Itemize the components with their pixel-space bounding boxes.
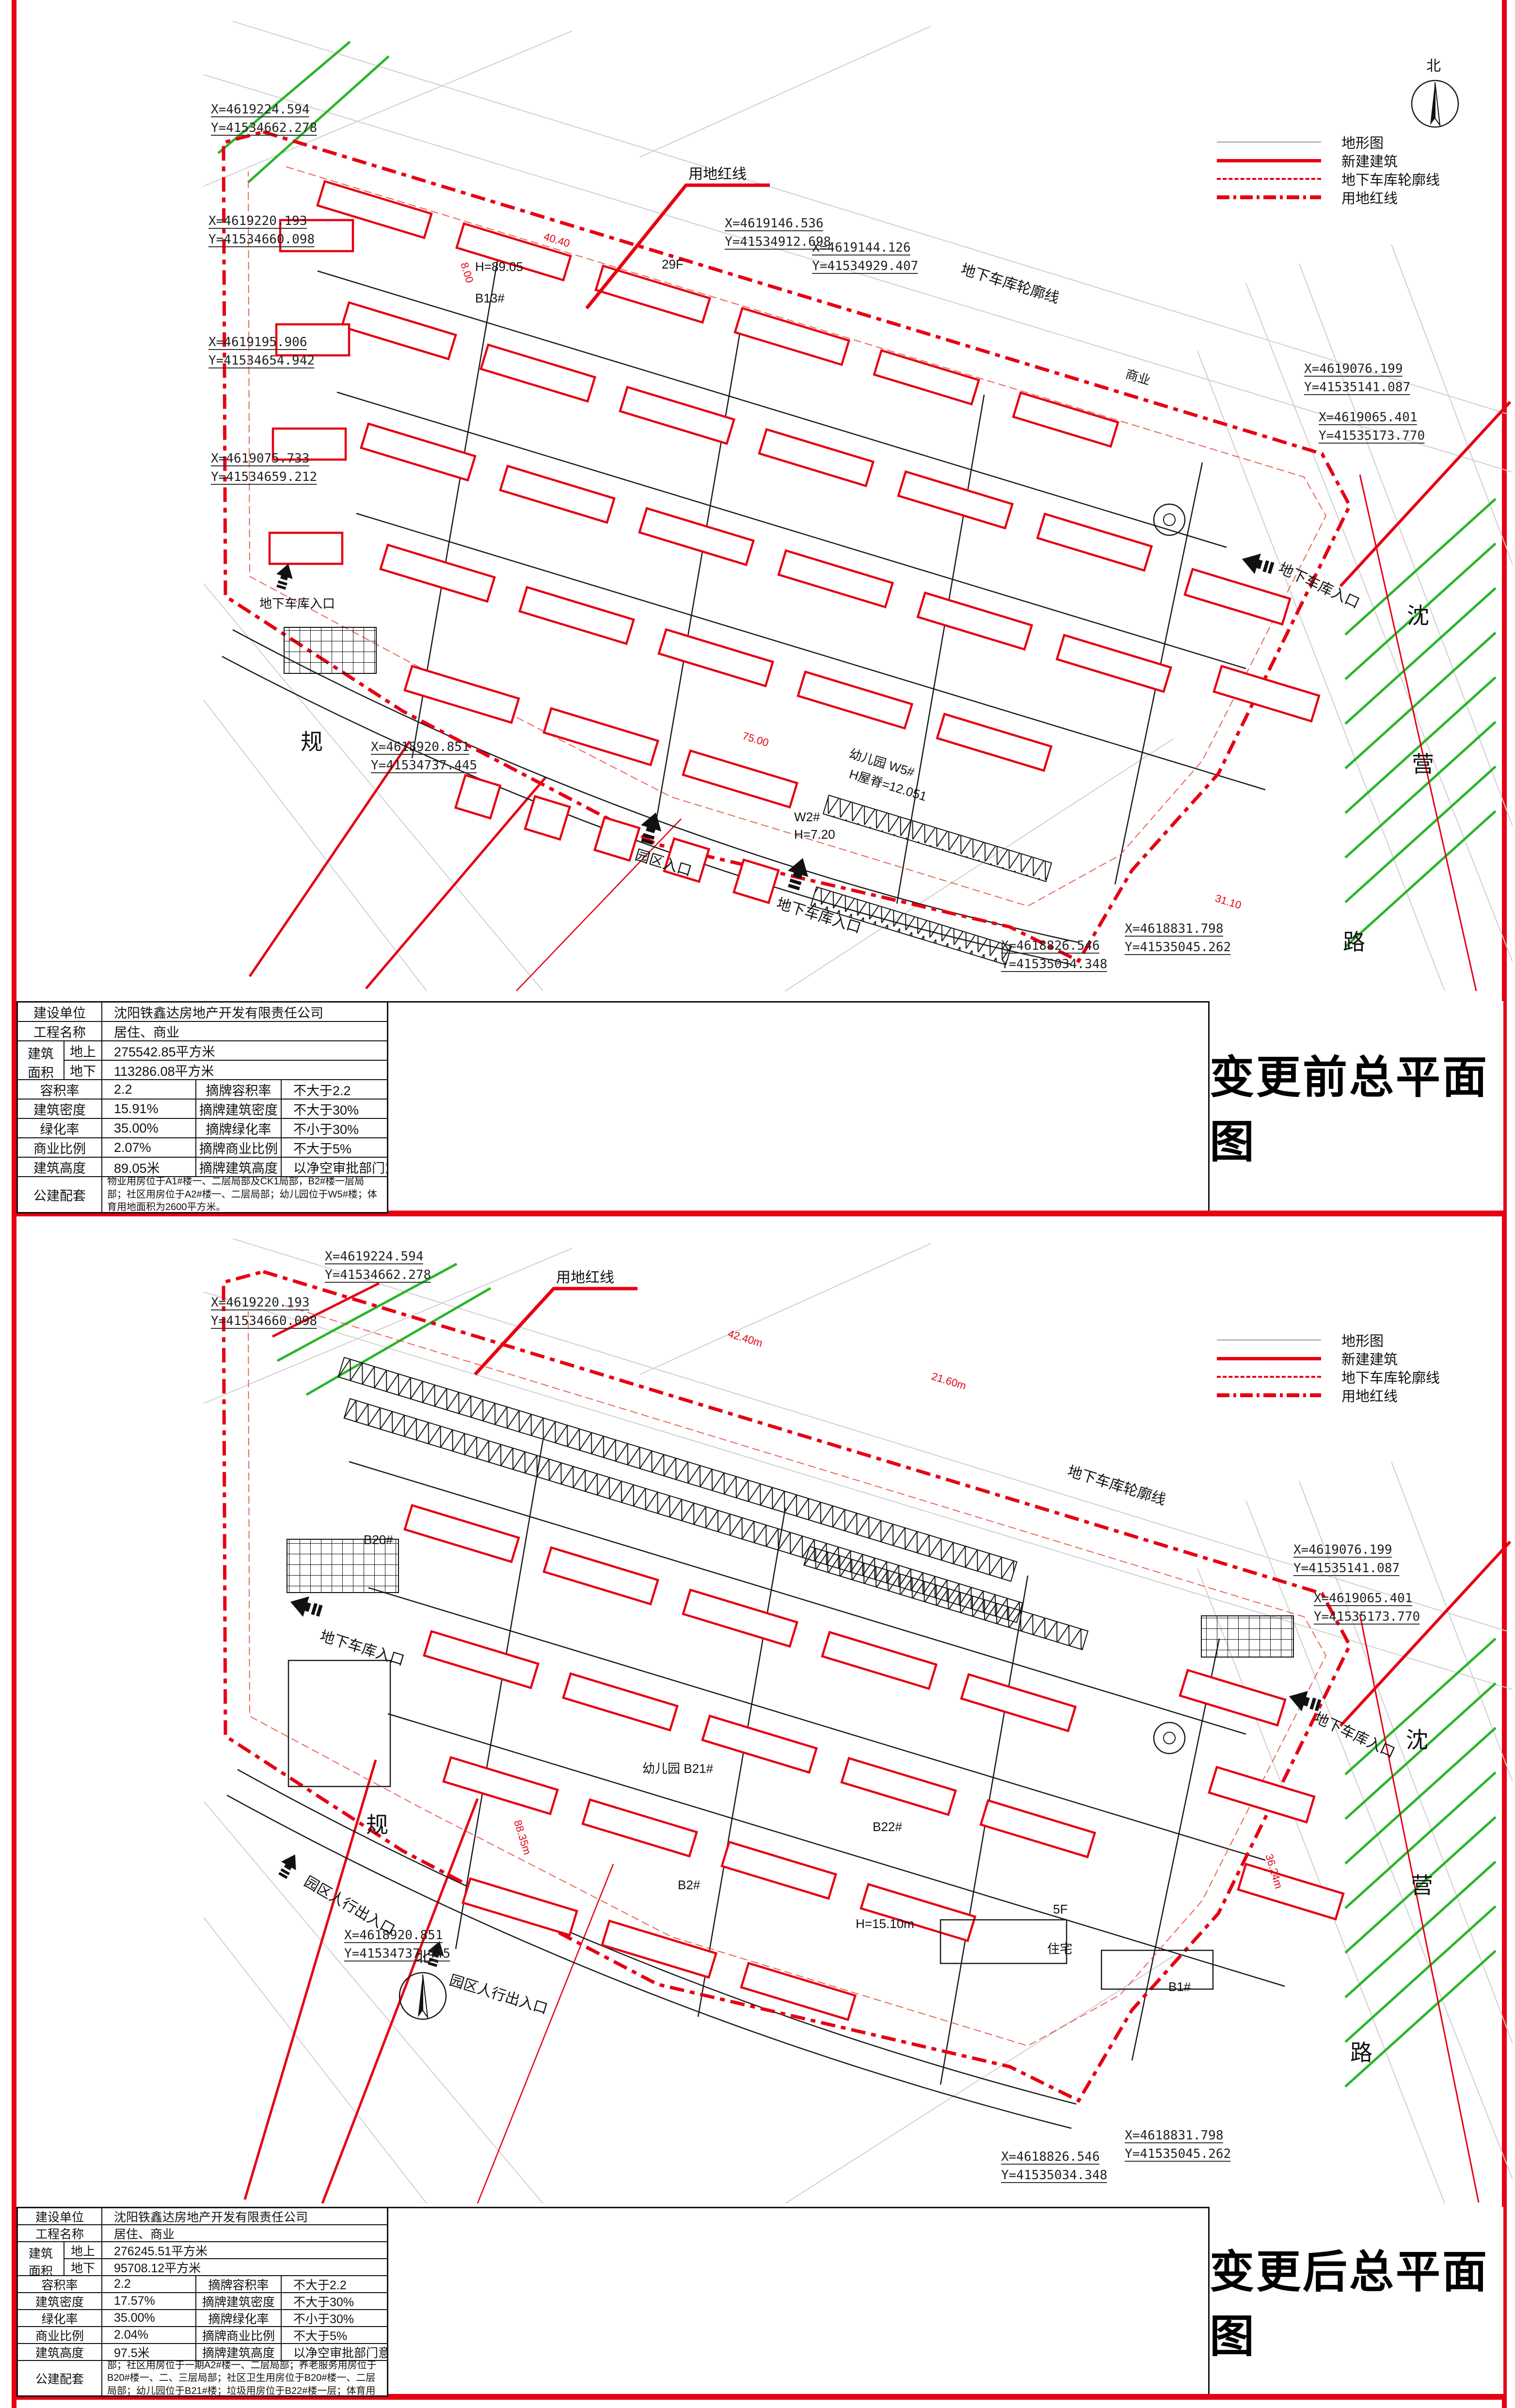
row-label: 公建配套	[18, 1177, 102, 1212]
map-label: 88.35m	[511, 1818, 533, 1856]
new-building-swatch	[1217, 159, 1321, 162]
public-facilities-value: 物业用房位于一期A1#楼一、二层局部及B20#楼一层、三层局部；社区用房位于一期…	[102, 2361, 387, 2395]
density2-value: 不大于30%	[282, 2293, 387, 2310]
legend-label: 地形图	[1341, 1330, 1384, 1350]
row-label: 商业比例	[18, 1138, 102, 1158]
row-label: 摘牌建筑高度	[196, 2344, 282, 2361]
row-label: 容积率	[18, 2276, 102, 2293]
map-label: X=4618920.851	[371, 740, 470, 754]
parking-grid	[1201, 1616, 1293, 1657]
redline-leader	[475, 1289, 638, 1374]
map-label: 规	[366, 1812, 388, 1837]
map-label: Y=41534660.098	[208, 232, 315, 247]
legend-label: 地下车库轮廓线	[1341, 169, 1440, 189]
legend-item-garage-outline: 地下车库轮廓线	[1217, 1368, 1488, 1386]
far-value: 2.2	[102, 2276, 196, 2293]
map-label: X=4619144.126	[812, 240, 911, 255]
row-label: 建筑密度	[18, 1100, 102, 1119]
legend-label: 新建建筑	[1341, 1348, 1398, 1369]
map-label: X=4619146.536	[725, 216, 824, 231]
height2-value: 以净空审批部门意见为准	[282, 1158, 387, 1177]
map-label: 营	[1412, 751, 1434, 777]
map-label: Y=41534654.942	[208, 353, 315, 368]
map-label: 用地红线	[556, 1270, 614, 1286]
company-value: 沈阳铁鑫达房地产开发有限责任公司	[102, 1003, 387, 1022]
project-value: 居住、商业	[102, 1022, 387, 1041]
row-label: 地上	[64, 2242, 102, 2259]
garage-entrance-arrow-icon	[273, 561, 297, 591]
legend-item-topo: 地形图	[1217, 1331, 1488, 1349]
map-label: 营	[1411, 1873, 1433, 1898]
map-label: Y=41534662.278	[325, 1268, 431, 1282]
below-ground-area: 113286.08平方米	[102, 1061, 387, 1080]
map-label: Y=41535034.348	[1001, 957, 1107, 972]
row-label: 工程名称	[18, 2225, 102, 2242]
below-ground-area: 95708.12平方米	[102, 2259, 387, 2276]
internal-roads	[222, 249, 1265, 964]
legend-label: 地形图	[1341, 132, 1384, 152]
spec-table-before: 建设单位 沈阳铁鑫达房地产开发有限责任公司 工程名称 居住、商业 建筑 面积 地…	[16, 1001, 388, 1213]
map-label: 用地红线	[688, 166, 747, 182]
height-value: 89.05米	[102, 1158, 196, 1177]
parking-grid	[287, 1539, 399, 1593]
drawing-sheet: { "titles": { "before": "变更前总平面图", "afte…	[0, 0, 1515, 2408]
legend-item-new-building: 新建建筑	[1217, 1349, 1488, 1368]
map-label: X=4619065.401	[1314, 1591, 1413, 1606]
map-label: Y=41535045.262	[1125, 940, 1231, 955]
map-label: X=4619224.594	[211, 102, 310, 117]
legend-before: 地形图 新建建筑 地下车库轮廓线 用地红线	[1217, 133, 1488, 207]
map-label: 地下车库轮廓线	[1066, 1463, 1167, 1508]
green-hatch-area	[1345, 1639, 1496, 2087]
row-label-area: 建筑 面积	[18, 1041, 64, 1080]
map-label: W2#	[794, 810, 820, 824]
map-label: 75.00	[741, 730, 770, 749]
row-label: 摘牌绿化率	[196, 1119, 282, 1138]
company-value: 沈阳铁鑫达房地产开发有限责任公司	[102, 2208, 387, 2225]
map-label: X=4619224.594	[325, 1249, 424, 1264]
project-value: 居住、商业	[102, 2225, 387, 2242]
map-label: X=4619076.199	[1293, 1543, 1392, 1557]
map-label: 沈	[1407, 603, 1429, 628]
roundabout	[1154, 1722, 1185, 1754]
biz2-value: 不大于5%	[282, 1138, 387, 1158]
map-label: X=4619076.199	[1304, 362, 1403, 376]
row-label: 地上	[64, 1041, 102, 1061]
map-label: 42.40m	[727, 1327, 764, 1349]
legend-item-new-building: 新建建筑	[1217, 151, 1488, 170]
map-label: 路	[1350, 2040, 1372, 2065]
map-label: 路	[1343, 929, 1365, 955]
row-label: 工程名称	[18, 1022, 102, 1041]
row-label: 地下	[64, 2259, 102, 2276]
north-arrow-icon	[399, 1973, 446, 2019]
topo-line-swatch	[1217, 142, 1321, 143]
map-label: X=4618831.798	[1125, 2128, 1224, 2143]
map-label: X=4619220.193	[208, 214, 307, 228]
map-label: Y=41534659.212	[211, 470, 317, 484]
legend-item-garage-outline: 地下车库轮廓线	[1217, 170, 1488, 188]
map-label: X=4619065.401	[1319, 410, 1418, 425]
sheet-title-before: 变更前总平面图	[1208, 1001, 1503, 1211]
row-label: 建筑密度	[18, 2293, 102, 2310]
far-value: 2.2	[102, 1080, 196, 1100]
new-buildings	[270, 181, 1319, 974]
map-label: Y=41534660.098	[211, 1314, 317, 1328]
map-label: B1#	[1168, 1979, 1191, 1994]
garage-entrance-arrow-icon	[783, 855, 813, 892]
row-label: 建筑高度	[18, 2344, 102, 2361]
row-label: 摘牌建筑高度	[196, 1158, 282, 1177]
map-label: Y=41534662.278	[211, 121, 317, 135]
green2-value: 不小于30%	[282, 2310, 387, 2327]
spec-table-after: 建设单位 沈阳铁鑫达房地产开发有限责任公司 工程名称 居住、商业 建筑 面积 地…	[16, 2207, 388, 2397]
row-label-area: 建筑 面积	[18, 2242, 64, 2276]
red-line-swatch	[1217, 1393, 1321, 1397]
row-label: 建设单位	[18, 2208, 102, 2225]
row-label: 摘牌建筑密度	[196, 2293, 282, 2310]
row-label: 摘牌容积率	[196, 1080, 282, 1100]
site-plan-before: X=4619224.594Y=41534662.278X=4619220.193…	[204, 12, 1513, 994]
row-label: 绿化率	[18, 2310, 102, 2327]
row-label: 摘牌建筑密度	[196, 1100, 282, 1119]
topo-line-swatch	[1217, 1340, 1321, 1340]
density-value: 17.57%	[102, 2293, 196, 2310]
map-label: Y=41535173.770	[1319, 429, 1425, 443]
row-label: 公建配套	[18, 2361, 102, 2395]
map-label: 规	[301, 729, 323, 754]
site-plan-after: X=4619224.594Y=41534662.278X=4619220.193…	[204, 1234, 1513, 2203]
map-label: Y=41535034.348	[1001, 2168, 1107, 2183]
legend-label: 用地红线	[1341, 1385, 1398, 1405]
page-border-left	[12, 0, 16, 2408]
garage-entrance-arrow-icon	[1239, 549, 1276, 578]
area-label-line1: 建筑	[28, 1043, 54, 1062]
row-label: 摘牌商业比例	[196, 1138, 282, 1158]
map-label: 29F	[662, 257, 684, 271]
garage-entrance-arrow-icon	[287, 1592, 324, 1621]
map-label: 园区人行出入口	[447, 1972, 549, 2017]
green-value: 35.00%	[102, 1119, 196, 1138]
map-label: 5F	[1053, 1902, 1068, 1916]
map-label: Y=41534737.445	[371, 758, 477, 773]
height2-value: 以净空审批部门意见为准	[282, 2344, 387, 2361]
legend-item-topo: 地形图	[1217, 133, 1488, 151]
map-label: 21.60m	[930, 1370, 968, 1392]
row-label: 摘牌容积率	[196, 2276, 282, 2293]
row-label: 地下	[64, 1061, 102, 1080]
map-label: 住宅	[1047, 1942, 1072, 1956]
legend-label: 地下车库轮廓线	[1341, 1367, 1440, 1387]
map-label: 北	[1426, 58, 1441, 74]
parking-grid	[284, 627, 376, 673]
row-label: 建筑高度	[18, 1158, 102, 1177]
map-label: 沈	[1406, 1727, 1428, 1753]
map-label: B13#	[475, 291, 505, 305]
row-label: 摘牌绿化率	[196, 2310, 282, 2327]
map-label: Y=41535045.262	[1125, 2147, 1231, 2161]
legend-label: 新建建筑	[1341, 150, 1398, 171]
north-arrow-icon	[1412, 80, 1458, 127]
density-value: 15.91%	[102, 1100, 196, 1119]
green2-value: 不小于30%	[282, 1119, 387, 1138]
map-label: B20#	[364, 1532, 393, 1547]
legend-item-red-line: 用地红线	[1217, 188, 1488, 207]
far2-value: 不大于2.2	[282, 2276, 387, 2293]
map-label: 40.40	[542, 230, 572, 250]
map-label: 地下车库入口	[318, 1628, 406, 1669]
far2-value: 不大于2.2	[282, 1080, 387, 1100]
density2-value: 不大于30%	[282, 1100, 387, 1119]
map-label: Y=41535141.087	[1304, 380, 1410, 395]
map-label: 地下车库轮廓线	[959, 261, 1061, 306]
sheet-title-after: 变更后总平面图	[1208, 2207, 1503, 2394]
legend-label: 用地红线	[1341, 187, 1398, 207]
row-label: 摘牌商业比例	[196, 2327, 282, 2344]
map-label: 31.10	[1214, 892, 1243, 911]
map-label: Y=41535141.087	[1293, 1561, 1400, 1576]
map-label: Y=41535173.770	[1314, 1610, 1420, 1624]
map-label: Y=41534929.407	[812, 259, 918, 273]
red-line-swatch	[1217, 195, 1321, 199]
area-label-line2: 面积	[29, 2262, 53, 2276]
area-label-line2: 面积	[28, 1062, 54, 1080]
map-label: H=15.10m	[856, 1916, 914, 1931]
biz-value: 2.07%	[102, 1138, 196, 1158]
map-label: H=89.05	[475, 259, 523, 274]
height-value: 97.5米	[102, 2344, 196, 2361]
row-label: 商业比例	[18, 2327, 102, 2344]
garage-outline-swatch	[1217, 1376, 1321, 1378]
map-label: B22#	[873, 1819, 902, 1834]
legend-item-red-line: 用地红线	[1217, 1386, 1488, 1404]
row-label: 容积率	[18, 1080, 102, 1100]
public-facilities-value: 物业用房位于A1#楼一、二层局部及CK1局部，B2#楼一层局部；社区用房位于A2…	[102, 1177, 387, 1212]
row-label: 建设单位	[18, 1003, 102, 1022]
area-label-line1: 建筑	[29, 2244, 53, 2262]
green-value: 35.00%	[102, 2310, 196, 2327]
map-label: Y=41534737.445	[344, 1946, 450, 1961]
legend-after: 地形图 新建建筑 地下车库轮廓线 用地红线	[1217, 1331, 1488, 1404]
map-label: X=4618831.798	[1125, 922, 1224, 936]
new-building-swatch	[1217, 1357, 1321, 1360]
map-label: 8.00	[458, 261, 476, 284]
map-label: B2#	[678, 1878, 701, 1892]
biz2-value: 不大于5%	[282, 2327, 387, 2344]
map-label: X=4618826.546	[1001, 939, 1100, 953]
map-label: 北	[416, 1949, 431, 1965]
above-ground-area: 276245.51平方米	[102, 2242, 387, 2259]
map-label: X=4619075.733	[211, 451, 310, 466]
map-label: 幼儿园 B21#	[642, 1761, 713, 1776]
row-label: 绿化率	[18, 1119, 102, 1138]
above-ground-area: 275542.85平方米	[102, 1041, 387, 1061]
map-label: 地下车库入口	[259, 596, 335, 611]
map-label: X=4618826.546	[1001, 2150, 1100, 2164]
map-label: X=4619195.906	[208, 335, 307, 350]
map-label: 商业	[1124, 367, 1152, 388]
map-label: X=4619220.193	[211, 1295, 310, 1310]
biz-value: 2.04%	[102, 2327, 196, 2344]
garage-outline-swatch	[1217, 178, 1321, 180]
map-label: H=7.20	[794, 827, 835, 842]
entrance-arrow-icon	[275, 1850, 303, 1881]
